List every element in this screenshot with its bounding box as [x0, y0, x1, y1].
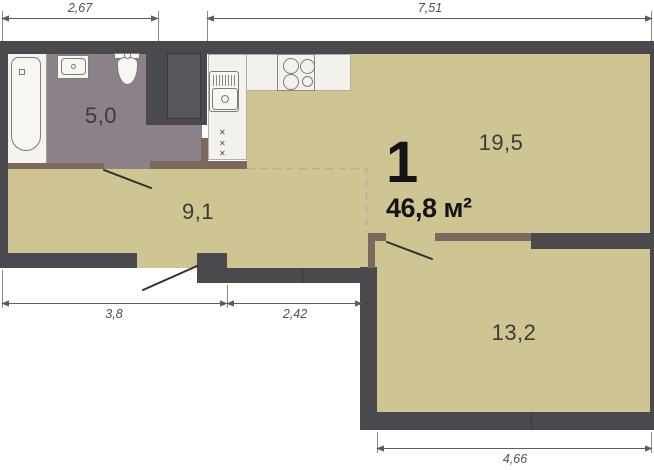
room-label-hallway: 9,1: [172, 199, 224, 225]
door-swing-lines: [104, 170, 432, 290]
unit-number: 1: [386, 134, 472, 192]
dim-top-right: 7,51: [390, 1, 470, 15]
entrance-door-swing: [143, 266, 197, 290]
dim-bedroom-bottom: 4,66: [480, 452, 550, 466]
extension-lines: [3, 11, 652, 453]
linework-layer: [0, 0, 654, 470]
unit-title: 1 46,8 м²: [386, 134, 472, 222]
room-label-bathroom: 5,0: [75, 103, 127, 129]
dimension-lines: [2, 19, 652, 449]
room-label-kitchen-living: 19,5: [470, 130, 532, 156]
dim-top-left: 2,67: [40, 1, 120, 15]
floor-plan: ✕ ✕ ✕: [0, 0, 654, 470]
room-label-bedroom: 13,2: [483, 320, 545, 346]
dim-bottom-mid: 2,42: [265, 307, 325, 321]
unit-total-area: 46,8 м²: [386, 195, 472, 222]
bedroom-door-swing: [387, 242, 432, 259]
dim-bottom-left: 3,8: [84, 307, 144, 321]
kitchen-zone-dashed-line: [247, 169, 367, 234]
bathroom-door-swing: [104, 170, 151, 188]
